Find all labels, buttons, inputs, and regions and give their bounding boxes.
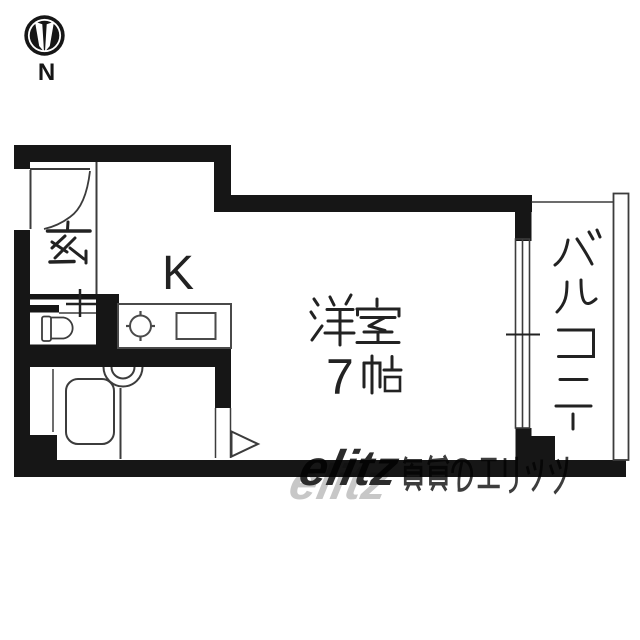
svg-text:N: N [38,59,55,86]
svg-text:K: K [162,247,194,300]
svg-text:elitz: elitz [295,440,404,496]
svg-text:7: 7 [326,349,354,405]
